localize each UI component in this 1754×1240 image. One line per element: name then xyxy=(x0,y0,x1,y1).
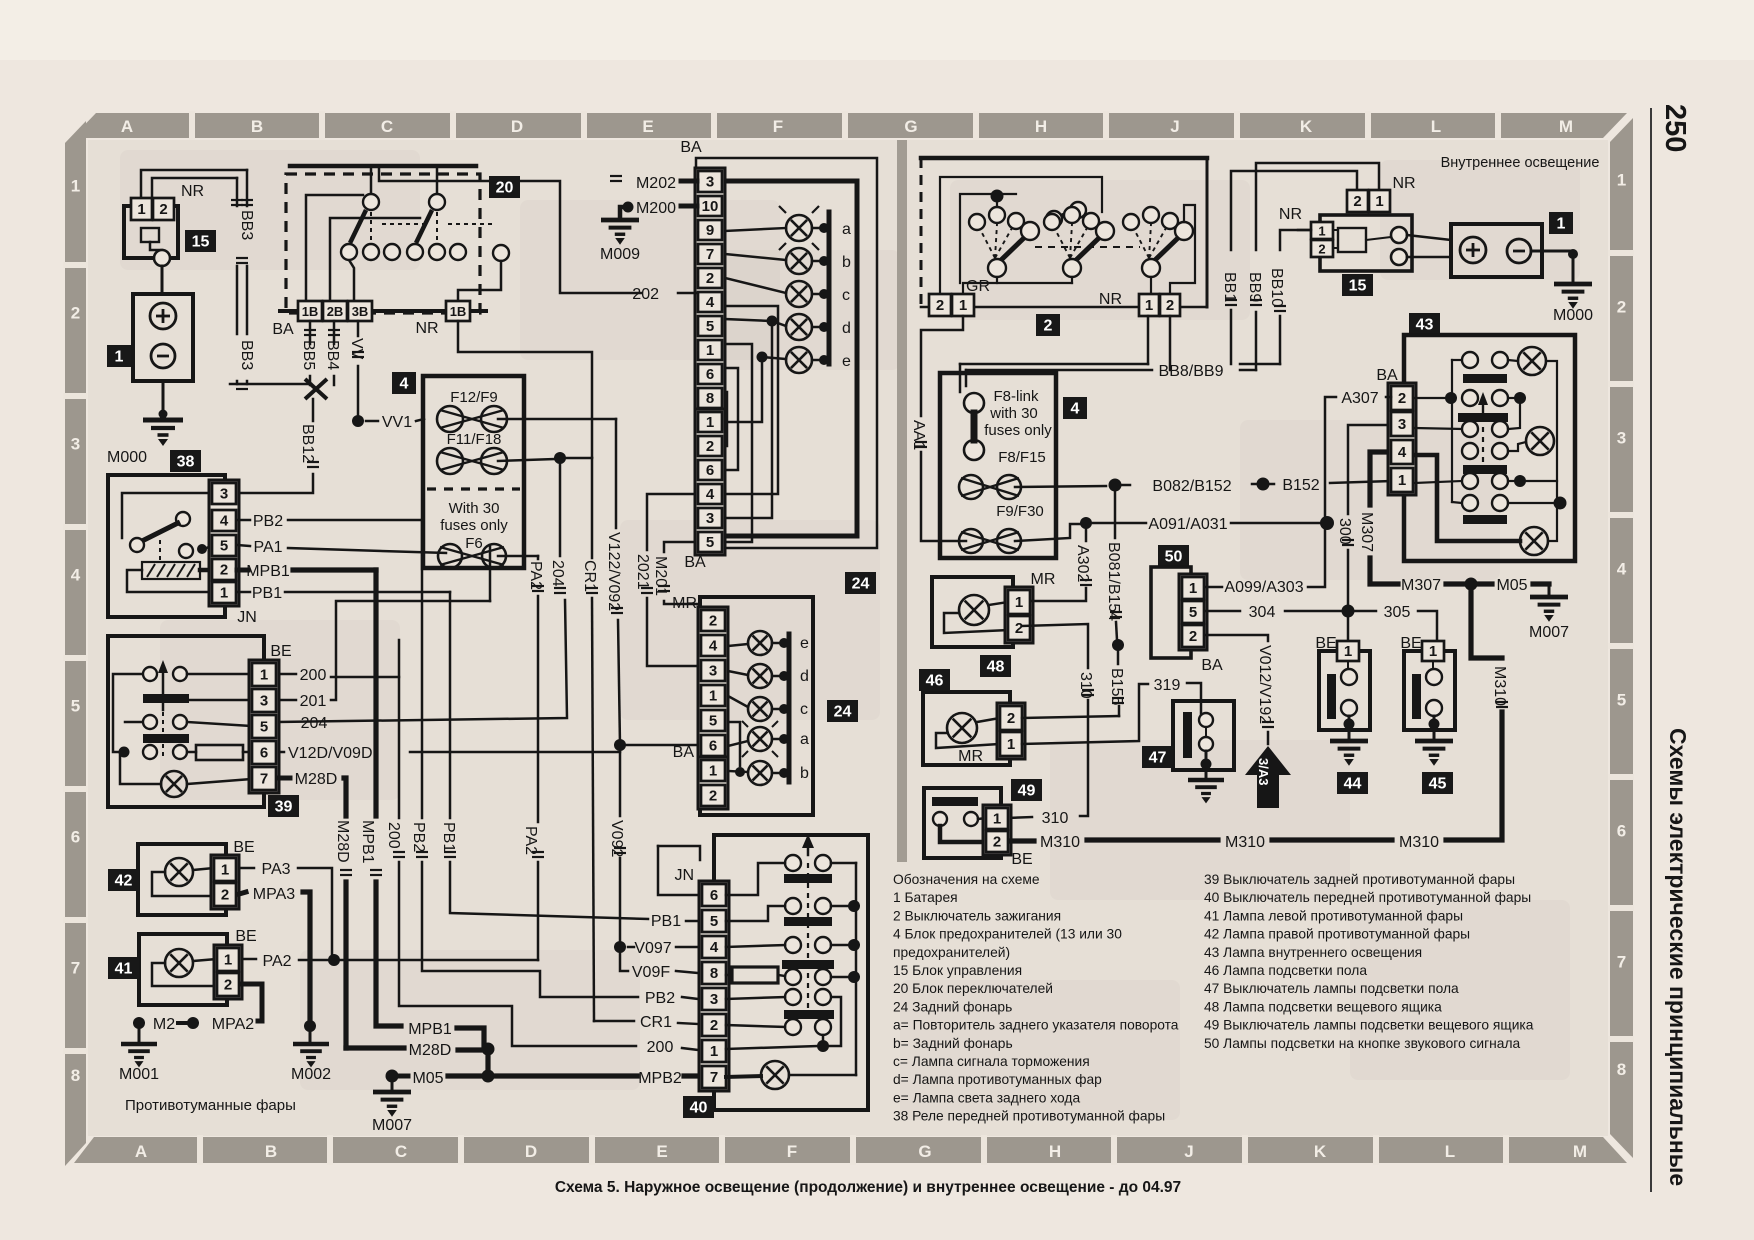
svg-text:M200: M200 xyxy=(636,200,676,217)
svg-text:3: 3 xyxy=(709,663,717,680)
svg-text:48: 48 xyxy=(987,659,1005,676)
svg-text:F12/F9: F12/F9 xyxy=(450,389,498,406)
svg-text:1: 1 xyxy=(1398,472,1406,489)
svg-text:GR: GR xyxy=(966,278,990,295)
svg-text:7: 7 xyxy=(71,959,80,978)
svg-text:4: 4 xyxy=(1617,560,1627,579)
svg-text:2: 2 xyxy=(710,1017,718,1034)
svg-text:M: M xyxy=(1573,1142,1587,1161)
svg-text:1: 1 xyxy=(1557,216,1566,233)
svg-text:305: 305 xyxy=(1384,604,1411,621)
svg-text:V097: V097 xyxy=(634,940,671,957)
svg-text:fuses only: fuses only xyxy=(984,422,1052,439)
svg-text:BB3: BB3 xyxy=(238,210,255,240)
svg-text:MR: MR xyxy=(1031,571,1056,588)
svg-text:1: 1 xyxy=(1375,193,1383,210)
svg-text:204: 204 xyxy=(549,560,566,587)
svg-text:A: A xyxy=(121,117,133,136)
svg-text:200: 200 xyxy=(385,822,402,849)
svg-text:e: e xyxy=(800,635,809,652)
svg-text:4: 4 xyxy=(71,566,81,585)
svg-text:6: 6 xyxy=(706,462,714,479)
svg-text:5: 5 xyxy=(220,538,228,555)
svg-text:M310: M310 xyxy=(1040,834,1080,851)
svg-text:2: 2 xyxy=(1617,298,1626,317)
svg-text:M009: M009 xyxy=(600,246,640,263)
svg-text:42 Лампа правой противотуманно: 42 Лампа правой противотуманной фары xyxy=(1204,927,1470,942)
svg-text:47 Выключатель лампы подсветки: 47 Выключатель лампы подсветки пола xyxy=(1204,981,1459,996)
svg-text:PB1: PB1 xyxy=(252,585,282,602)
svg-text:AA1: AA1 xyxy=(910,420,927,450)
svg-text:BA: BA xyxy=(272,321,294,338)
svg-text:MPA3: MPA3 xyxy=(253,886,295,903)
svg-text:10: 10 xyxy=(702,198,719,215)
svg-text:PB2: PB2 xyxy=(410,822,427,852)
svg-text:PA2: PA2 xyxy=(262,953,291,970)
svg-text:PB1: PB1 xyxy=(651,913,681,930)
svg-text:PA1: PA1 xyxy=(253,539,282,556)
svg-text:MPB1: MPB1 xyxy=(359,820,376,864)
svg-text:1: 1 xyxy=(1015,594,1023,611)
svg-text:41: 41 xyxy=(115,961,133,978)
svg-text:D: D xyxy=(525,1142,537,1161)
svg-text:1B: 1B xyxy=(302,304,319,319)
svg-text:4: 4 xyxy=(1398,444,1407,461)
svg-text:M05: M05 xyxy=(412,1070,443,1087)
svg-text:8: 8 xyxy=(1617,1060,1626,1079)
svg-text:Внутреннее освещение: Внутреннее освещение xyxy=(1441,155,1600,171)
svg-text:1: 1 xyxy=(1145,297,1153,314)
svg-text:20: 20 xyxy=(496,180,514,197)
svg-text:1: 1 xyxy=(115,349,124,366)
svg-text:43: 43 xyxy=(1416,317,1434,334)
svg-text:45: 45 xyxy=(1429,776,1447,793)
svg-text:1: 1 xyxy=(1617,171,1626,190)
svg-text:1: 1 xyxy=(1344,643,1352,660)
svg-text:BB8/BB9: BB8/BB9 xyxy=(1159,363,1224,380)
svg-text:5: 5 xyxy=(710,913,718,930)
svg-text:VV1: VV1 xyxy=(382,414,412,431)
svg-text:BB4: BB4 xyxy=(324,340,341,370)
svg-text:M000: M000 xyxy=(1553,307,1593,324)
svg-text:1: 1 xyxy=(260,667,268,684)
svg-text:201: 201 xyxy=(300,693,327,710)
svg-text:1: 1 xyxy=(1318,224,1325,239)
svg-text:7: 7 xyxy=(1617,953,1626,972)
svg-text:49: 49 xyxy=(1018,783,1036,800)
svg-text:F: F xyxy=(773,117,783,136)
svg-text:a: a xyxy=(842,221,851,238)
svg-text:1: 1 xyxy=(706,414,714,431)
svg-text:BA: BA xyxy=(1376,367,1398,384)
svg-text:2: 2 xyxy=(706,438,714,455)
svg-text:310: 310 xyxy=(1042,810,1069,827)
svg-text:K: K xyxy=(1314,1142,1327,1161)
svg-text:204: 204 xyxy=(301,715,328,732)
svg-text:7: 7 xyxy=(260,771,268,788)
svg-text:3: 3 xyxy=(706,174,714,191)
svg-text:BB5: BB5 xyxy=(300,340,317,370)
svg-text:38 Реле передней противотуманн: 38 Реле передней противотуманной фары xyxy=(893,1109,1165,1124)
svg-text:1: 1 xyxy=(1007,736,1015,753)
svg-text:43 Лампа внутреннего освещения: 43 Лампа внутреннего освещения xyxy=(1204,945,1422,960)
svg-text:1: 1 xyxy=(221,862,229,879)
svg-text:c: c xyxy=(800,701,808,718)
svg-text:e= Лампа света заднего хода: e= Лампа света заднего хода xyxy=(893,1090,1080,1105)
svg-text:2: 2 xyxy=(1007,710,1015,727)
svg-text:BB10: BB10 xyxy=(1268,268,1285,307)
svg-text:2: 2 xyxy=(71,304,80,323)
svg-text:MPB1: MPB1 xyxy=(408,1021,452,1038)
svg-text:2021: 2021 xyxy=(634,554,651,590)
svg-text:V092: V092 xyxy=(608,820,625,857)
svg-text:BE: BE xyxy=(235,928,256,945)
svg-text:B: B xyxy=(251,117,263,136)
svg-text:CR1: CR1 xyxy=(640,1014,672,1031)
svg-text:M28D: M28D xyxy=(409,1042,452,1059)
svg-text:1: 1 xyxy=(1429,643,1437,660)
svg-text:5: 5 xyxy=(260,719,268,736)
svg-text:2B: 2B xyxy=(327,304,344,319)
svg-text:8: 8 xyxy=(71,1066,80,1085)
svg-text:2: 2 xyxy=(1398,390,1406,407)
svg-text:MPA2: MPA2 xyxy=(212,1016,254,1033)
svg-text:F: F xyxy=(787,1142,797,1161)
svg-text:D: D xyxy=(511,117,523,136)
svg-text:6: 6 xyxy=(709,738,717,755)
svg-text:8: 8 xyxy=(710,965,718,982)
svg-text:E: E xyxy=(656,1142,667,1161)
svg-text:M202: M202 xyxy=(636,175,676,192)
svg-text:C: C xyxy=(381,117,393,136)
svg-text:a= Повторитель заднего указате: a= Повторитель заднего указателя поворот… xyxy=(893,1018,1179,1033)
svg-text:A302: A302 xyxy=(1074,545,1091,582)
svg-text:M307: M307 xyxy=(1358,512,1375,552)
svg-text:MR: MR xyxy=(958,748,983,765)
svg-text:F6: F6 xyxy=(465,535,483,552)
svg-text:15: 15 xyxy=(1349,278,1367,295)
svg-text:B155: B155 xyxy=(1108,668,1125,705)
svg-text:C: C xyxy=(395,1142,407,1161)
svg-text:1: 1 xyxy=(71,177,80,196)
svg-text:V012/V192: V012/V192 xyxy=(1256,645,1273,724)
svg-text:предохранителей): предохранителей) xyxy=(893,945,1010,960)
svg-text:6: 6 xyxy=(71,828,80,847)
svg-text:BB12: BB12 xyxy=(299,424,316,463)
svg-text:Противотуманные фары: Противотуманные фары xyxy=(125,1097,296,1114)
svg-text:1: 1 xyxy=(709,763,717,780)
svg-text:6: 6 xyxy=(706,366,714,383)
svg-text:39 Выключатель задней противот: 39 Выключатель задней противотуманной фа… xyxy=(1204,872,1515,887)
svg-text:3: 3 xyxy=(1617,429,1626,448)
svg-text:BE: BE xyxy=(270,643,291,660)
svg-text:4: 4 xyxy=(710,939,719,956)
svg-text:39: 39 xyxy=(275,799,293,816)
svg-text:M007: M007 xyxy=(372,1117,412,1134)
svg-text:40: 40 xyxy=(690,1100,708,1117)
svg-text:BA: BA xyxy=(680,139,702,156)
svg-text:M007: M007 xyxy=(1529,624,1569,641)
svg-text:319: 319 xyxy=(1154,677,1181,694)
svg-text:M2: M2 xyxy=(153,1016,175,1033)
svg-text:A091/A031: A091/A031 xyxy=(1148,516,1227,533)
svg-text:BA: BA xyxy=(684,554,706,571)
svg-text:MR: MR xyxy=(672,595,697,612)
svg-text:42: 42 xyxy=(115,873,133,890)
svg-text:NR: NR xyxy=(181,183,204,200)
svg-text:B082/B152: B082/B152 xyxy=(1152,478,1231,495)
svg-text:2: 2 xyxy=(936,297,944,314)
svg-text:8: 8 xyxy=(706,390,714,407)
svg-text:PB1: PB1 xyxy=(440,822,457,852)
svg-text:2: 2 xyxy=(993,834,1001,851)
svg-text:4: 4 xyxy=(1071,401,1080,418)
svg-text:M310: M310 xyxy=(1399,834,1439,851)
svg-text:G: G xyxy=(904,117,917,136)
svg-text:B152: B152 xyxy=(1282,477,1319,494)
svg-text:MPB1: MPB1 xyxy=(246,563,290,580)
svg-text:BE: BE xyxy=(1011,851,1032,868)
svg-text:M28D: M28D xyxy=(334,820,351,863)
svg-text:2: 2 xyxy=(1318,242,1325,257)
svg-text:20 Блок переключателей: 20 Блок переключателей xyxy=(893,981,1053,996)
svg-text:NR: NR xyxy=(1099,291,1122,308)
svg-text:1: 1 xyxy=(706,342,714,359)
svg-text:24 Задний фонарь: 24 Задний фонарь xyxy=(893,999,1012,1014)
svg-text:304: 304 xyxy=(1249,604,1276,621)
svg-text:4: 4 xyxy=(400,376,409,393)
svg-text:K: K xyxy=(1300,117,1313,136)
svg-text:NR: NR xyxy=(1392,175,1415,192)
svg-text:F9/F30: F9/F30 xyxy=(996,503,1044,520)
svg-text:3: 3 xyxy=(1398,416,1406,433)
svg-text:2: 2 xyxy=(709,788,717,805)
svg-text:M310: M310 xyxy=(1225,834,1265,851)
svg-text:F8/F15: F8/F15 xyxy=(998,449,1046,466)
svg-text:PA2: PA2 xyxy=(522,826,539,855)
svg-text:JN: JN xyxy=(674,867,694,884)
svg-text:e: e xyxy=(842,353,851,370)
svg-text:Схема 5. Наружное освещение (п: Схема 5. Наружное освещение (продолжение… xyxy=(555,1179,1181,1196)
svg-text:3: 3 xyxy=(706,510,714,527)
svg-text:With 30: With 30 xyxy=(449,500,500,517)
svg-text:3: 3 xyxy=(260,693,268,710)
svg-text:B081/B154: B081/B154 xyxy=(1105,542,1122,621)
svg-text:BA: BA xyxy=(673,744,695,761)
svg-text:with 30: with 30 xyxy=(989,405,1038,422)
svg-text:250: 250 xyxy=(1659,104,1691,152)
svg-text:4: 4 xyxy=(709,638,718,655)
svg-text:3/А3: 3/А3 xyxy=(1256,758,1271,785)
svg-text:A: A xyxy=(135,1142,147,1161)
svg-text:M002: M002 xyxy=(291,1066,331,1083)
svg-text:48 Лампа подсветки вещевого ящ: 48 Лампа подсветки вещевого ящика xyxy=(1204,999,1442,1014)
svg-text:5: 5 xyxy=(1189,604,1197,621)
svg-text:2: 2 xyxy=(706,270,714,287)
svg-text:Обозначения на схеме: Обозначения на схеме xyxy=(893,872,1040,887)
svg-text:BE: BE xyxy=(233,839,254,856)
svg-text:4: 4 xyxy=(706,294,715,311)
svg-text:6: 6 xyxy=(710,887,718,904)
svg-text:b: b xyxy=(842,254,851,271)
svg-text:5: 5 xyxy=(71,697,80,716)
svg-text:L: L xyxy=(1445,1142,1455,1161)
svg-text:BB3: BB3 xyxy=(238,340,255,370)
svg-text:MPB2: MPB2 xyxy=(638,1070,682,1087)
svg-text:46: 46 xyxy=(926,673,944,690)
svg-text:2 Выключатель зажигания: 2 Выключатель зажигания xyxy=(893,908,1061,923)
svg-text:6: 6 xyxy=(1617,822,1626,841)
svg-text:46 Лампа подсветки пола: 46 Лампа подсветки пола xyxy=(1204,963,1367,978)
svg-text:2: 2 xyxy=(709,613,717,630)
svg-text:24: 24 xyxy=(834,704,852,721)
svg-text:JN: JN xyxy=(237,609,257,626)
svg-text:BB9: BB9 xyxy=(1246,272,1263,302)
svg-text:M05: M05 xyxy=(1496,577,1527,594)
svg-text:2: 2 xyxy=(159,201,167,218)
svg-text:6: 6 xyxy=(260,745,268,762)
svg-text:3: 3 xyxy=(220,486,228,503)
svg-text:3B: 3B xyxy=(352,304,369,319)
svg-text:3: 3 xyxy=(710,991,718,1008)
svg-text:Схемы электрические принципиал: Схемы электрические принципиальные xyxy=(1665,728,1691,1186)
svg-text:J: J xyxy=(1184,1142,1193,1161)
svg-text:1: 1 xyxy=(1189,580,1197,597)
svg-text:d= Лампа противотуманных фар: d= Лампа противотуманных фар xyxy=(893,1072,1102,1087)
svg-text:24: 24 xyxy=(852,576,870,593)
svg-text:5: 5 xyxy=(1617,691,1626,710)
svg-text:2: 2 xyxy=(1353,193,1361,210)
svg-text:PB2: PB2 xyxy=(253,513,283,530)
svg-text:7: 7 xyxy=(706,246,714,263)
svg-text:47: 47 xyxy=(1149,750,1167,767)
svg-text:b: b xyxy=(800,765,809,782)
svg-text:1: 1 xyxy=(137,201,145,218)
svg-text:1: 1 xyxy=(709,688,717,705)
svg-text:H: H xyxy=(1049,1142,1061,1161)
svg-text:d: d xyxy=(800,668,809,685)
svg-text:H: H xyxy=(1035,117,1047,136)
svg-text:PA3: PA3 xyxy=(261,861,290,878)
svg-text:200: 200 xyxy=(300,667,327,684)
svg-text:5: 5 xyxy=(706,318,714,335)
svg-text:4: 4 xyxy=(220,513,229,530)
svg-text:200: 200 xyxy=(647,1039,674,1056)
svg-text:fuses only: fuses only xyxy=(440,517,508,534)
svg-text:202: 202 xyxy=(632,286,659,303)
svg-text:1: 1 xyxy=(959,297,967,314)
svg-text:c= Лампа сигнала торможения: c= Лампа сигнала торможения xyxy=(893,1054,1090,1069)
svg-text:M: M xyxy=(1559,117,1573,136)
svg-text:15 Блок управления: 15 Блок управления xyxy=(893,963,1022,978)
svg-text:A099/A303: A099/A303 xyxy=(1224,579,1303,596)
svg-text:PB2: PB2 xyxy=(645,990,675,1007)
svg-text:1: 1 xyxy=(220,585,228,602)
svg-text:L: L xyxy=(1431,117,1441,136)
svg-text:V12D/V09D: V12D/V09D xyxy=(288,745,373,762)
svg-text:2: 2 xyxy=(1044,318,1053,335)
svg-text:15: 15 xyxy=(192,234,210,251)
svg-text:5: 5 xyxy=(709,713,717,730)
svg-text:41 Лампа левой противотуманной: 41 Лампа левой противотуманной фары xyxy=(1204,908,1463,923)
svg-text:G: G xyxy=(918,1142,931,1161)
svg-text:2: 2 xyxy=(224,977,232,994)
svg-text:M310: M310 xyxy=(1491,666,1508,706)
svg-text:d: d xyxy=(842,320,851,337)
svg-text:c: c xyxy=(842,287,850,304)
svg-text:F11/F18: F11/F18 xyxy=(447,431,502,448)
svg-text:V122/V092: V122/V092 xyxy=(605,532,622,611)
svg-text:A307: A307 xyxy=(1341,390,1378,407)
svg-text:44: 44 xyxy=(1344,776,1362,793)
svg-text:M001: M001 xyxy=(119,1066,159,1083)
svg-text:50: 50 xyxy=(1165,549,1183,566)
svg-text:M307: M307 xyxy=(1401,577,1441,594)
svg-text:F8-link: F8-link xyxy=(993,388,1039,405)
svg-text:40 Выключатель передней против: 40 Выключатель передней противотуманной … xyxy=(1204,890,1531,905)
svg-text:2: 2 xyxy=(220,562,228,579)
svg-text:E: E xyxy=(642,117,653,136)
svg-text:2: 2 xyxy=(1189,628,1197,645)
svg-text:49 Выключатель лампы подсветки: 49 Выключатель лампы подсветки вещевого … xyxy=(1204,1018,1534,1033)
svg-text:50 Лампы подсветки на кнопке з: 50 Лампы подсветки на кнопке звукового с… xyxy=(1204,1036,1520,1051)
svg-text:2: 2 xyxy=(1015,620,1023,637)
svg-text:38: 38 xyxy=(177,454,195,471)
svg-text:a: a xyxy=(800,731,809,748)
svg-text:NR: NR xyxy=(415,320,438,337)
svg-text:M28D: M28D xyxy=(295,771,338,788)
svg-text:4: 4 xyxy=(706,486,715,503)
svg-text:B: B xyxy=(265,1142,277,1161)
svg-text:BB1: BB1 xyxy=(1221,272,1238,302)
svg-text:V09F: V09F xyxy=(632,964,670,981)
svg-text:4 Блок предохранителей (13 или: 4 Блок предохранителей (13 или 30 xyxy=(893,927,1122,942)
svg-text:7: 7 xyxy=(710,1069,718,1086)
svg-text:1 Батарея: 1 Батарея xyxy=(893,890,958,905)
svg-text:1: 1 xyxy=(710,1043,718,1060)
svg-text:M000: M000 xyxy=(107,449,147,466)
svg-text:5: 5 xyxy=(706,534,714,551)
svg-text:BA: BA xyxy=(1201,657,1223,674)
svg-text:9: 9 xyxy=(706,222,714,239)
svg-text:NR: NR xyxy=(1279,206,1302,223)
svg-text:J: J xyxy=(1170,117,1179,136)
svg-text:b= Задний фонарь: b= Задний фонарь xyxy=(893,1036,1013,1051)
svg-text:1: 1 xyxy=(993,811,1001,828)
svg-text:2: 2 xyxy=(1166,297,1174,314)
svg-text:1B: 1B xyxy=(450,304,467,319)
svg-text:3: 3 xyxy=(71,435,80,454)
svg-text:1: 1 xyxy=(224,952,232,969)
svg-text:2: 2 xyxy=(221,887,229,904)
